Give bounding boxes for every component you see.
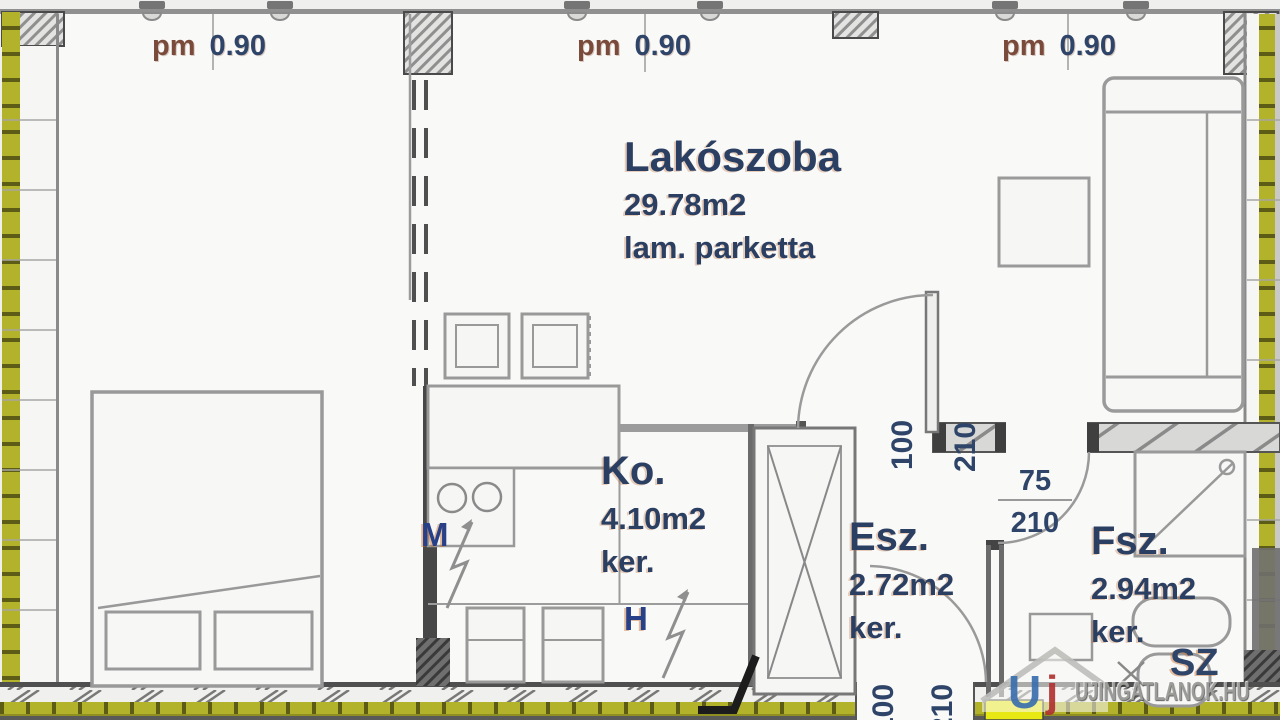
dim-entry-width: 100	[867, 684, 900, 720]
room-floor: ker.	[849, 611, 954, 644]
left-wall	[2, 12, 58, 720]
room-label-bathroom: Fsz. 2.94m2 ker.	[1091, 520, 1196, 648]
room-floor: lam. parketta	[624, 231, 841, 264]
window-parapet-label: pm 0.90	[1002, 30, 1116, 63]
room-area: 2.94m2	[1091, 572, 1196, 605]
dim-door2-width: 75	[1019, 465, 1051, 497]
room-label-living: Lakószoba 29.78m2 lam. parketta	[624, 134, 841, 264]
wardrobe	[754, 428, 855, 694]
floor-plan: 100 210 75 210 100 210 pm 0.90 pm 0.90 p…	[0, 0, 1280, 720]
parapet-value: 0.90	[1060, 30, 1116, 63]
room-name: Lakószoba	[624, 134, 841, 179]
washer-label: M	[421, 516, 449, 554]
watermark-logo-j: j	[1045, 667, 1058, 716]
room-name: Ko.	[601, 450, 706, 493]
parapet-value: 0.90	[210, 30, 266, 63]
window-parapet-label: pm 0.90	[152, 30, 266, 63]
stool	[445, 314, 509, 378]
window-parapet-label: pm 0.90	[577, 30, 691, 63]
room-floor: ker.	[601, 545, 706, 578]
watermark: U j UJINGATLANOK.HU	[978, 640, 1280, 720]
dim-door1-width: 100	[886, 420, 919, 470]
parapet-prefix: pm	[577, 30, 621, 63]
dim-door1-height: 210	[949, 422, 982, 472]
kitchen-counter	[428, 386, 619, 468]
dim-door2-height: 210	[1011, 507, 1059, 539]
watermark-logo-u: U	[1008, 666, 1041, 718]
room-area: 29.78m2	[624, 188, 841, 221]
pillow	[106, 612, 200, 669]
room-area: 4.10m2	[601, 502, 706, 535]
bed	[92, 392, 322, 686]
living-bath-wall	[933, 421, 1280, 454]
dim-entry-height: 210	[926, 684, 959, 720]
room-name: Esz.	[849, 516, 954, 559]
parapet-prefix: pm	[1002, 30, 1046, 63]
watermark-text: UJINGATLANOK.HU	[1075, 676, 1250, 707]
fridge-label: H	[624, 600, 648, 638]
cabinet	[467, 608, 524, 682]
room-label-hall: Esz. 2.72m2 ker.	[849, 516, 954, 644]
pillow	[215, 612, 312, 669]
cabinet	[543, 608, 603, 682]
right-wall	[1244, 14, 1280, 720]
room-area: 2.72m2	[849, 568, 954, 601]
side-table	[999, 178, 1089, 266]
room-name: Fsz.	[1091, 520, 1196, 563]
room-label-kitchen: Ko. 4.10m2 ker.	[601, 450, 706, 578]
sofa-bed	[1104, 78, 1243, 411]
parapet-prefix: pm	[152, 30, 196, 63]
parapet-value: 0.90	[635, 30, 691, 63]
stool	[522, 314, 588, 378]
